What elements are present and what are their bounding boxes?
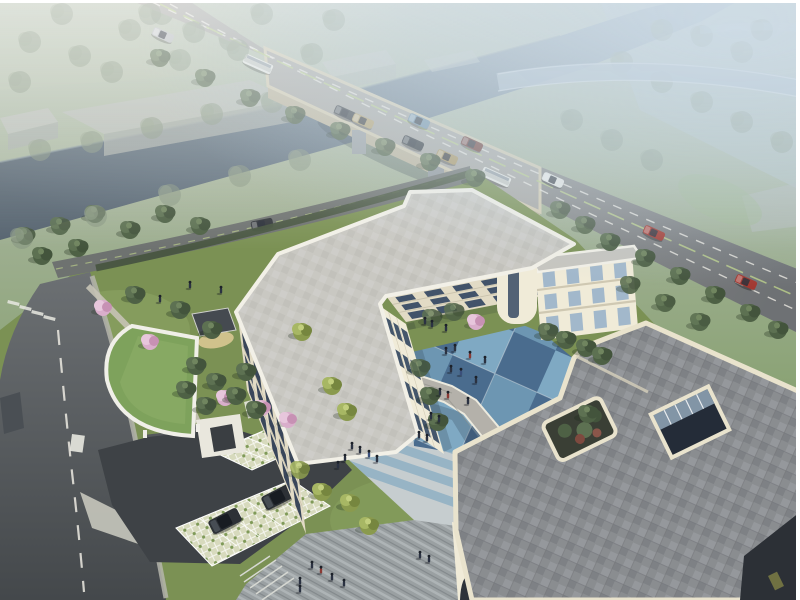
border-top bbox=[0, 0, 800, 3]
rendering-image bbox=[0, 0, 800, 600]
small-pavilion bbox=[0, 392, 24, 434]
border-right bbox=[796, 0, 800, 600]
blue-haze-top-right bbox=[0, 0, 800, 340]
trellis-fence bbox=[70, 434, 85, 453]
